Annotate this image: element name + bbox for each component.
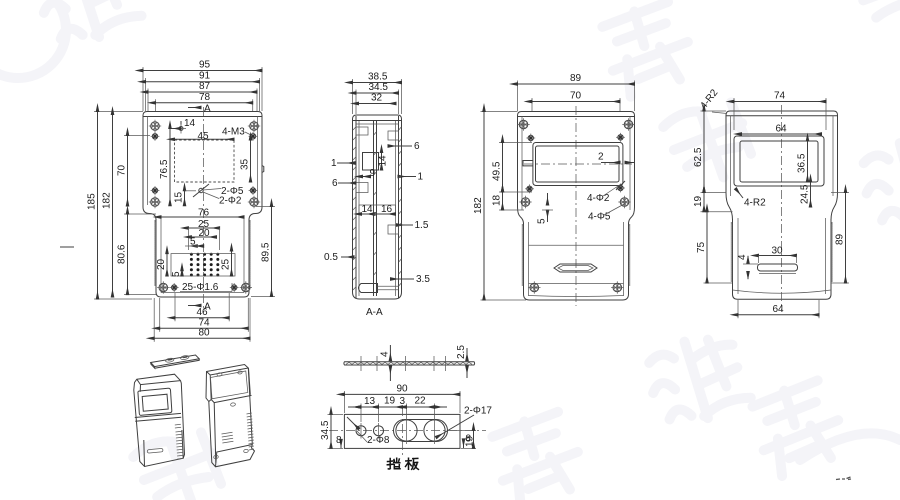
svg-text:62.5: 62.5 <box>693 147 704 167</box>
svg-text:5: 5 <box>171 271 182 277</box>
svg-text:3: 3 <box>400 396 406 407</box>
svg-text:90: 90 <box>397 383 409 394</box>
svg-text:4: 4 <box>380 351 391 357</box>
svg-text:4-Φ2: 4-Φ2 <box>587 193 610 204</box>
svg-text:A: A <box>204 104 211 115</box>
svg-text:78: 78 <box>199 92 211 103</box>
svg-text:182: 182 <box>102 192 113 209</box>
svg-text:4: 4 <box>737 254 748 260</box>
svg-text:34.5: 34.5 <box>369 82 389 93</box>
svg-text:45: 45 <box>198 131 210 142</box>
svg-text:19: 19 <box>384 396 396 407</box>
svg-text:38.5: 38.5 <box>368 72 388 83</box>
svg-text:A-A: A-A <box>366 307 383 318</box>
svg-text:0.5: 0.5 <box>324 252 338 263</box>
svg-text:14: 14 <box>378 155 389 167</box>
svg-text:185: 185 <box>87 193 98 210</box>
svg-text:182: 182 <box>473 197 484 214</box>
svg-text:13: 13 <box>364 396 376 407</box>
svg-text:64: 64 <box>776 124 788 135</box>
svg-text:1: 1 <box>418 172 424 183</box>
svg-text:64: 64 <box>773 304 785 315</box>
svg-text:36.5: 36.5 <box>797 153 808 173</box>
svg-text:4-R2: 4-R2 <box>744 198 766 209</box>
svg-text:87: 87 <box>199 81 211 92</box>
svg-text:5: 5 <box>190 237 196 248</box>
svg-text:30: 30 <box>772 246 784 257</box>
svg-text:19: 19 <box>693 195 704 207</box>
svg-text:19: 19 <box>465 435 476 447</box>
svg-text:35: 35 <box>240 158 251 170</box>
svg-text:74: 74 <box>774 91 786 102</box>
svg-text:6: 6 <box>414 141 420 152</box>
svg-text:80: 80 <box>199 328 211 339</box>
svg-text:25: 25 <box>221 258 232 270</box>
svg-text:76.5: 76.5 <box>159 159 170 179</box>
svg-text:20: 20 <box>156 258 167 270</box>
svg-text:4-M3: 4-M3 <box>222 127 245 138</box>
svg-text:5: 5 <box>537 218 548 224</box>
svg-text:3.5: 3.5 <box>416 274 430 285</box>
svg-text:89.5: 89.5 <box>261 242 272 262</box>
svg-text:18: 18 <box>492 194 503 206</box>
svg-text:2.5: 2.5 <box>456 345 467 359</box>
svg-text:70: 70 <box>570 91 582 102</box>
svg-text:89: 89 <box>835 233 846 245</box>
svg-text:46: 46 <box>197 307 209 318</box>
svg-text:49.5: 49.5 <box>492 161 503 181</box>
svg-text:34.5: 34.5 <box>320 420 331 440</box>
svg-text:95: 95 <box>199 60 211 71</box>
svg-text:14: 14 <box>362 204 374 215</box>
svg-text:22: 22 <box>415 396 427 407</box>
svg-text:2-Φ17: 2-Φ17 <box>464 406 492 417</box>
svg-text:6: 6 <box>332 178 338 189</box>
svg-text:32: 32 <box>371 93 383 104</box>
svg-text:80.6: 80.6 <box>117 244 128 264</box>
svg-text:2-Φ2: 2-Φ2 <box>219 196 242 207</box>
svg-text:75: 75 <box>696 241 707 253</box>
svg-text:2: 2 <box>598 152 604 163</box>
svg-text:76: 76 <box>198 208 210 219</box>
svg-text:70: 70 <box>117 164 128 176</box>
svg-text:16: 16 <box>381 204 393 215</box>
svg-text:1.5: 1.5 <box>415 220 429 231</box>
svg-text:8: 8 <box>336 435 342 446</box>
svg-text:1: 1 <box>331 158 337 169</box>
svg-text:2-Φ8: 2-Φ8 <box>367 435 390 446</box>
svg-text:15: 15 <box>174 191 185 203</box>
svg-text:14: 14 <box>184 118 196 129</box>
svg-text:4-R2: 4-R2 <box>698 87 720 111</box>
svg-text:89: 89 <box>570 73 582 84</box>
svg-text:20: 20 <box>199 228 211 239</box>
svg-text:24.5: 24.5 <box>800 184 811 204</box>
